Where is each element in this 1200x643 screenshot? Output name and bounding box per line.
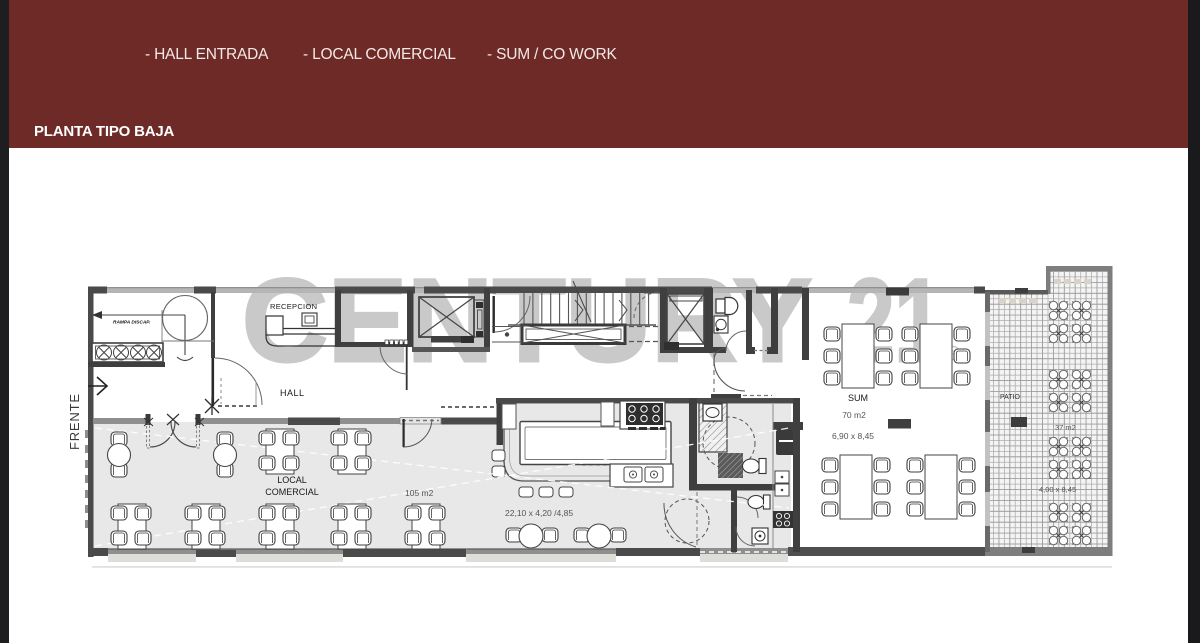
svg-text:PATIO: PATIO <box>1000 394 1021 401</box>
svg-text:FRENTE: FRENTE <box>67 393 82 450</box>
svg-text:HALL: HALL <box>280 388 305 398</box>
svg-text:COMERCIAL: COMERCIAL <box>265 487 319 497</box>
svg-text:RECEPCION: RECEPCION <box>270 302 317 311</box>
svg-text:SUM: SUM <box>848 393 868 403</box>
svg-text:6,90 x 8,45: 6,90 x 8,45 <box>832 431 874 441</box>
svg-text:4,00 x 8,45: 4,00 x 8,45 <box>1039 485 1076 494</box>
svg-text:22,10 x 4,20 /4,85: 22,10 x 4,20 /4,85 <box>505 508 573 518</box>
svg-text:70 m2: 70 m2 <box>842 410 866 420</box>
svg-text:RAMPA DISCAP.: RAMPA DISCAP. <box>113 320 150 326</box>
svg-text:105 m2: 105 m2 <box>405 488 434 498</box>
svg-text:LOCAL: LOCAL <box>277 475 307 485</box>
svg-text:37 m2: 37 m2 <box>1055 423 1076 432</box>
